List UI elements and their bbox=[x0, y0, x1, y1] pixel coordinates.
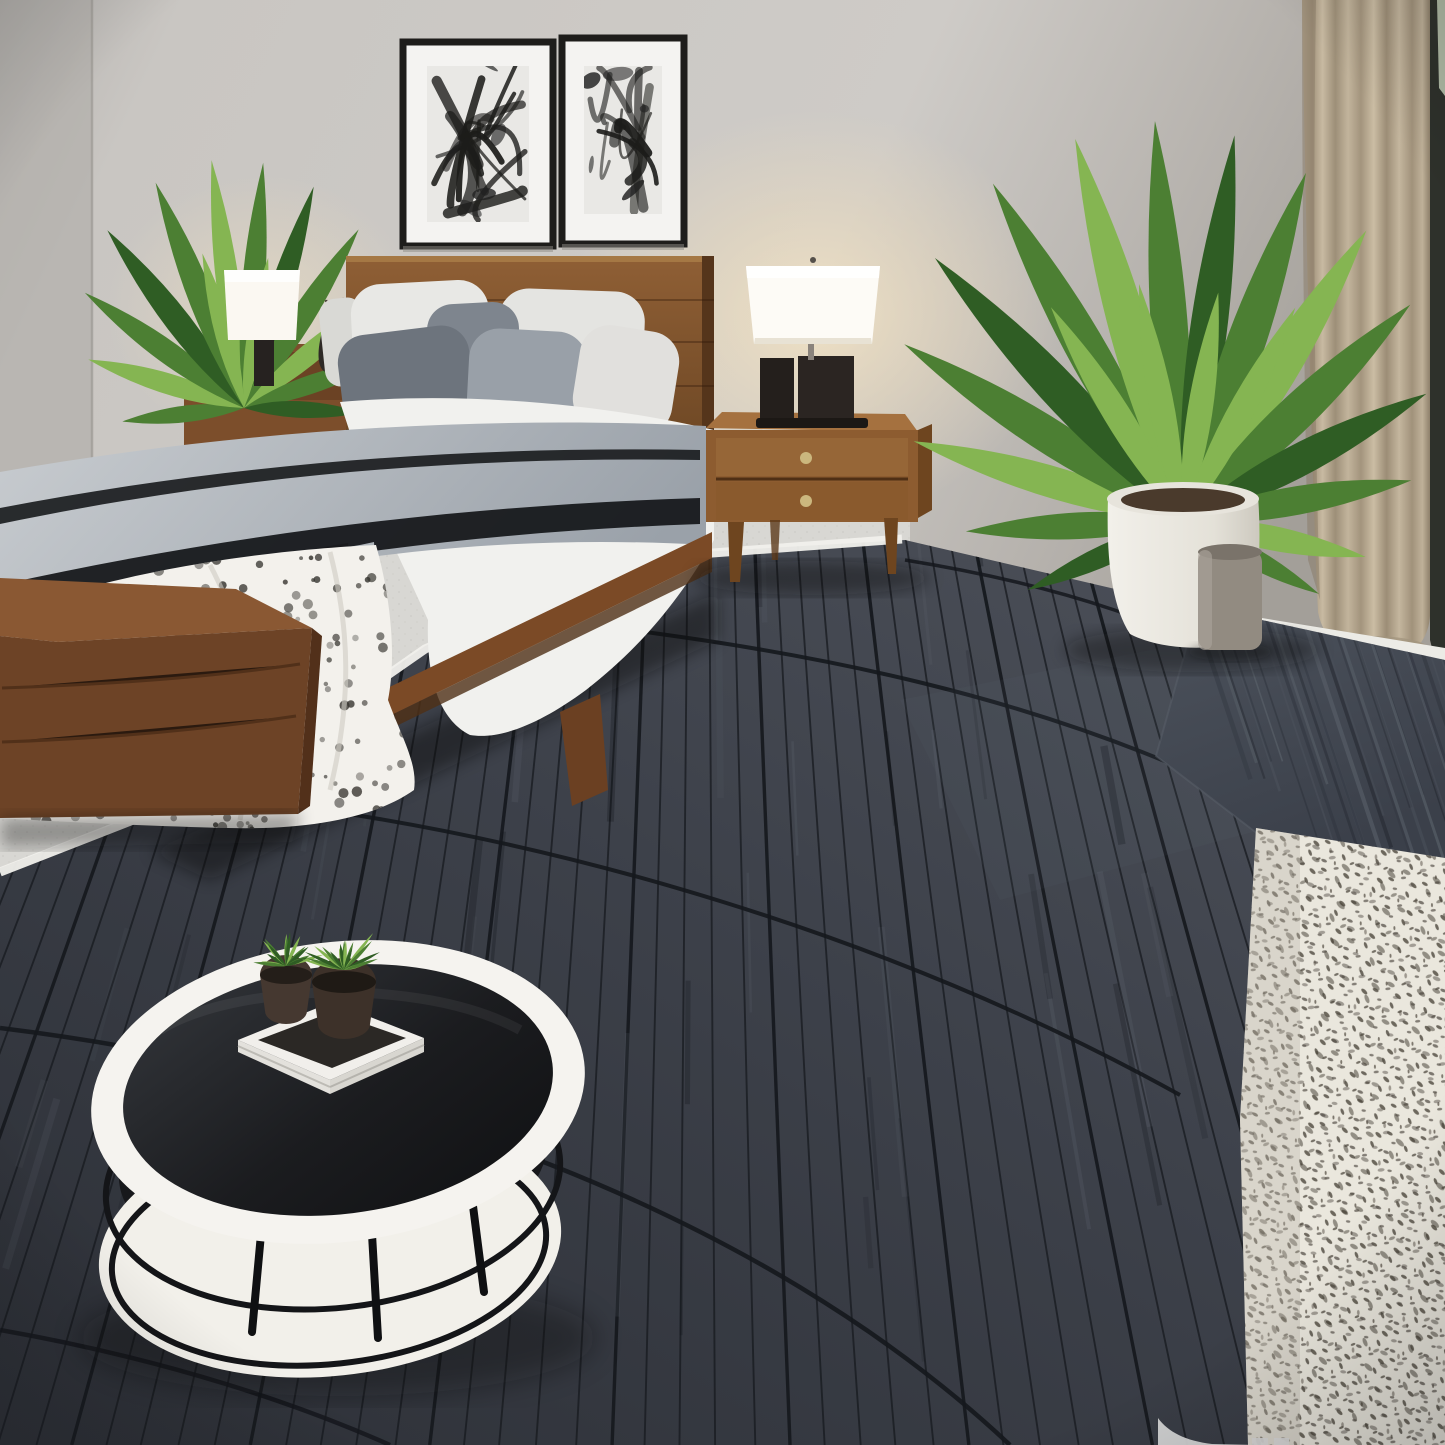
vignette bbox=[0, 0, 1445, 1445]
bedroom-photo bbox=[0, 0, 1445, 1445]
